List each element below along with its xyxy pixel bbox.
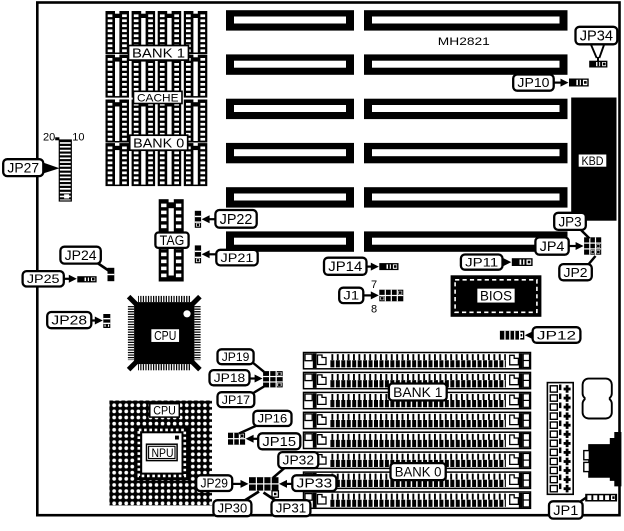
svg-text:8: 8 [371, 304, 377, 316]
svg-text:JP1: JP1 [553, 502, 578, 518]
svg-text:KBD: KBD [582, 154, 604, 168]
svg-text:20: 20 [43, 132, 55, 144]
svg-text:JP29: JP29 [200, 477, 228, 491]
svg-text:7: 7 [371, 279, 377, 291]
svg-text:NPU: NPU [152, 446, 174, 460]
svg-text:JP3: JP3 [558, 213, 581, 229]
svg-text:JP25: JP25 [27, 272, 60, 286]
svg-text:JP17: JP17 [222, 394, 250, 407]
svg-text:JP18: JP18 [214, 371, 246, 385]
svg-text:10: 10 [72, 132, 84, 144]
svg-text:JP14: JP14 [328, 258, 362, 274]
svg-text:JP32: JP32 [283, 453, 315, 468]
svg-text:CACHE: CACHE [137, 92, 179, 104]
svg-text:CPU: CPU [154, 329, 176, 343]
svg-text:JP28: JP28 [51, 313, 87, 328]
svg-text:TAG: TAG [160, 233, 185, 248]
svg-text:JP31: JP31 [276, 501, 306, 516]
svg-text:BANK 1: BANK 1 [393, 384, 442, 400]
svg-text:JP16: JP16 [258, 412, 288, 426]
svg-text:JP24: JP24 [65, 248, 97, 263]
svg-text:JP21: JP21 [221, 251, 254, 265]
svg-text:JP12: JP12 [537, 328, 576, 342]
svg-text:BIOS: BIOS [480, 288, 512, 303]
svg-text:JP30: JP30 [218, 501, 248, 516]
svg-text:CPU: CPU [153, 404, 176, 418]
svg-text:JP22: JP22 [220, 212, 253, 228]
svg-text:BANK 0: BANK 0 [395, 464, 442, 480]
svg-text:JP4: JP4 [540, 239, 565, 255]
svg-text:JP19: JP19 [222, 351, 250, 364]
svg-text:JP11: JP11 [465, 255, 498, 269]
svg-text:BANK 0: BANK 0 [133, 135, 184, 150]
svg-text:BANK 1: BANK 1 [132, 45, 185, 60]
svg-text:JP27: JP27 [7, 161, 39, 176]
svg-text:MH2821: MH2821 [438, 36, 490, 48]
svg-text:J1: J1 [343, 289, 359, 303]
svg-text:JP15: JP15 [262, 434, 296, 449]
svg-text:JP33: JP33 [297, 477, 333, 491]
svg-text:JP2: JP2 [564, 265, 588, 280]
svg-text:JP10: JP10 [517, 75, 549, 90]
svg-text:JP34: JP34 [580, 29, 613, 45]
